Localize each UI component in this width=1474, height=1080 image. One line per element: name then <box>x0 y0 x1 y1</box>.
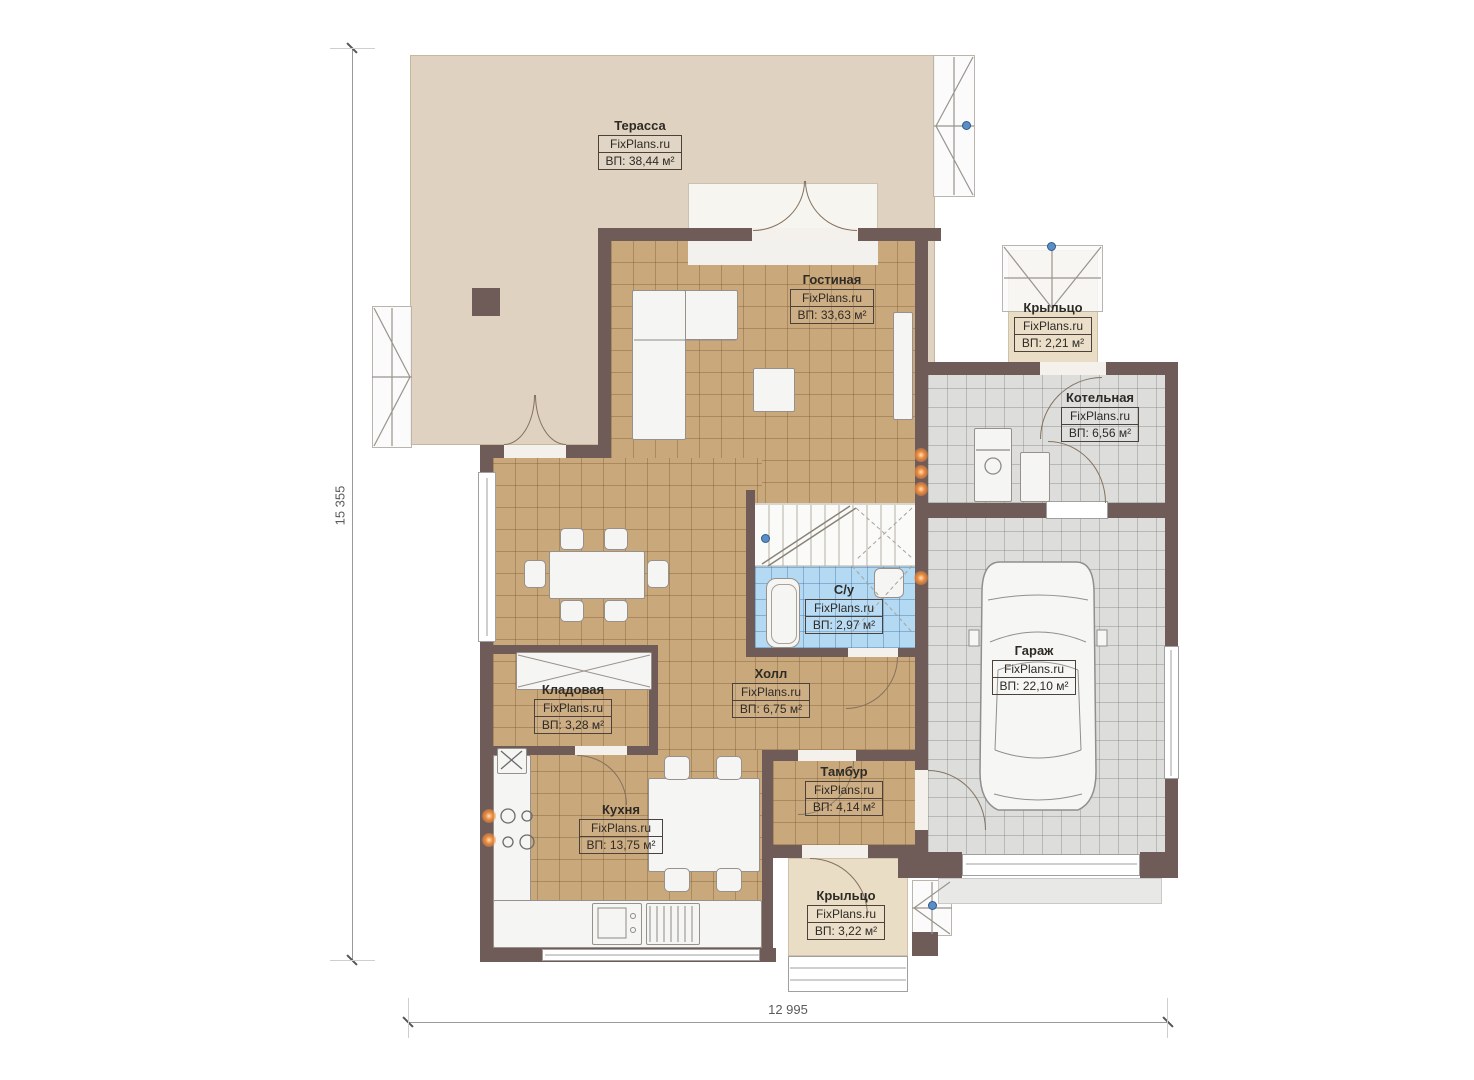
utility-marker <box>914 465 928 479</box>
garage-door <box>962 854 1140 876</box>
node-marker <box>962 121 971 130</box>
dining-table <box>549 551 645 599</box>
room-area: ВП: 2,97 м² <box>806 617 882 633</box>
kitchen-sink <box>592 903 642 945</box>
room-info-box: FixPlans.ru ВП: 2,21 м² <box>1014 317 1092 352</box>
porch-pillar <box>912 932 938 956</box>
opening-vestibule-garage <box>915 770 928 830</box>
room-name: Котельная <box>1032 390 1168 405</box>
kitchen-chair <box>716 756 742 780</box>
dimension-line-horizontal <box>408 1022 1168 1023</box>
utility-marker <box>914 448 928 462</box>
room-area: ВП: 6,75 м² <box>733 701 809 717</box>
opening-storage <box>575 746 627 755</box>
dimension-line-vertical <box>352 48 353 960</box>
room-name: Холл <box>708 666 834 681</box>
watermark: FixPlans.ru <box>808 906 884 923</box>
kitchen-chair <box>664 756 690 780</box>
watermark: FixPlans.ru <box>791 290 874 307</box>
wall-living-left <box>598 228 611 458</box>
porch-bottom-steps <box>788 956 908 992</box>
kitchen-chair <box>664 868 690 892</box>
door-boiler-garage <box>1046 501 1108 519</box>
utility-marker <box>914 571 928 585</box>
room-label-kitchen: Кухня FixPlans.ru ВП: 13,75 м² <box>556 802 686 854</box>
extension-line <box>1167 998 1168 1038</box>
room-area: ВП: 3,28 м² <box>535 717 611 733</box>
dimension-width: 12 995 <box>728 1002 848 1017</box>
window-kitchen-bottom <box>542 949 760 961</box>
dining-chair <box>560 600 584 622</box>
boiler-equipment <box>1020 452 1050 502</box>
watermark: FixPlans.ru <box>1015 318 1091 335</box>
room-label-boiler: Котельная FixPlans.ru ВП: 6,56 м² <box>1032 390 1168 442</box>
room-name: Терасса <box>570 118 710 133</box>
room-info-box: FixPlans.ru ВП: 4,14 м² <box>805 781 883 816</box>
opening-hall-vestibule <box>798 750 856 761</box>
room-info-box: FixPlans.ru ВП: 22,10 м² <box>992 660 1077 695</box>
kitchen-chair <box>716 868 742 892</box>
window-dining-left <box>478 472 496 642</box>
room-info-box: FixPlans.ru ВП: 6,75 м² <box>732 683 810 718</box>
room-name: Кладовая <box>510 682 636 697</box>
room-area: ВП: 2,21 м² <box>1015 335 1091 351</box>
room-area: ВП: 38,44 м² <box>599 153 682 169</box>
watermark: FixPlans.ru <box>733 684 809 701</box>
sideboard <box>893 312 913 420</box>
dining-chair <box>604 528 628 550</box>
kitchen-sink-top <box>497 748 527 774</box>
coffee-table <box>753 368 795 412</box>
room-info-box: FixPlans.ru ВП: 33,63 м² <box>790 289 875 324</box>
room-label-porch-bottom: Крыльцо FixPlans.ru ВП: 3,22 м² <box>782 888 910 940</box>
node-marker <box>761 534 770 543</box>
room-name: Гостиная <box>762 272 902 287</box>
room-info-box: FixPlans.ru ВП: 3,22 м² <box>807 905 885 940</box>
opening-vestibule-porch <box>802 845 868 858</box>
room-label-bathroom: С/у FixPlans.ru ВП: 2,97 м² <box>788 582 900 634</box>
window-garage-right <box>1164 646 1179 779</box>
room-area: ВП: 13,75 м² <box>580 837 663 853</box>
utility-marker <box>482 833 496 847</box>
room-label-terrace: Терасса FixPlans.ru ВП: 38,44 м² <box>570 118 710 170</box>
kitchen-counter-left <box>493 755 531 905</box>
room-name: Крыльцо <box>782 888 910 903</box>
terrace-post <box>472 288 500 316</box>
dining-chair <box>524 560 546 588</box>
watermark: FixPlans.ru <box>806 782 882 799</box>
room-label-garage: Гараж FixPlans.ru ВП: 22,10 м² <box>966 643 1102 695</box>
dimension-height: 15 355 <box>333 466 348 546</box>
extension-line <box>330 960 375 961</box>
threshold-living <box>688 241 878 265</box>
wall-garage-bottom-right <box>1140 852 1178 878</box>
node-marker <box>1047 242 1056 251</box>
utility-marker <box>482 809 496 823</box>
dining-chair <box>560 528 584 550</box>
room-label-porch-top: Крыльцо FixPlans.ru ВП: 2,21 м² <box>988 300 1118 352</box>
dining-chair <box>604 600 628 622</box>
watermark: FixPlans.ru <box>599 136 682 153</box>
wall-kitchen-vestibule <box>762 750 773 948</box>
room-info-box: FixPlans.ru ВП: 6,56 м² <box>1061 407 1139 442</box>
garage-apron <box>938 878 1162 904</box>
dish-rack <box>646 903 700 945</box>
room-label-storage: Кладовая FixPlans.ru ВП: 3,28 м² <box>510 682 636 734</box>
room-label-vestibule: Тамбур FixPlans.ru ВП: 4,14 м² <box>780 764 908 816</box>
room-label-living: Гостиная FixPlans.ru ВП: 33,63 м² <box>762 272 902 324</box>
room-area: ВП: 22,10 м² <box>993 678 1076 694</box>
room-name: Крыльцо <box>988 300 1118 315</box>
opening-living-terrace <box>752 228 858 241</box>
sofa-back <box>632 290 686 440</box>
floorplan-canvas: Терасса FixPlans.ru ВП: 38,44 м² Гостина… <box>0 0 1474 1080</box>
room-name: Тамбур <box>780 764 908 779</box>
room-name: Гараж <box>966 643 1102 658</box>
extension-line <box>330 48 375 49</box>
watermark: FixPlans.ru <box>1062 408 1138 425</box>
boiler-unit <box>974 428 1012 502</box>
node-marker <box>928 901 937 910</box>
opening-dining-terrace <box>504 445 566 458</box>
watermark: FixPlans.ru <box>535 700 611 717</box>
room-label-hall: Холл FixPlans.ru ВП: 6,75 м² <box>708 666 834 718</box>
extension-line <box>408 998 409 1038</box>
watermark: FixPlans.ru <box>580 820 663 837</box>
utility-marker <box>914 482 928 496</box>
room-area: ВП: 6,56 м² <box>1062 425 1138 441</box>
room-info-box: FixPlans.ru ВП: 38,44 м² <box>598 135 683 170</box>
room-info-box: FixPlans.ru ВП: 3,28 м² <box>534 699 612 734</box>
opening-bathroom <box>848 648 898 657</box>
wall-shared-right <box>915 228 928 858</box>
dining-chair <box>647 560 669 588</box>
staircase <box>755 503 915 566</box>
room-info-box: FixPlans.ru ВП: 2,97 м² <box>805 599 883 634</box>
opening-porch-boiler <box>1040 362 1106 375</box>
room-area: ВП: 3,22 м² <box>808 923 884 939</box>
room-area: ВП: 33,63 м² <box>791 307 874 323</box>
watermark: FixPlans.ru <box>806 600 882 617</box>
room-name: Кухня <box>556 802 686 817</box>
wall-stairs-left <box>746 490 755 657</box>
roof-overhang-left <box>372 306 412 448</box>
room-name: С/у <box>788 582 900 597</box>
room-info-box: FixPlans.ru ВП: 13,75 м² <box>579 819 664 854</box>
room-area: ВП: 4,14 м² <box>806 799 882 815</box>
watermark: FixPlans.ru <box>993 661 1076 678</box>
